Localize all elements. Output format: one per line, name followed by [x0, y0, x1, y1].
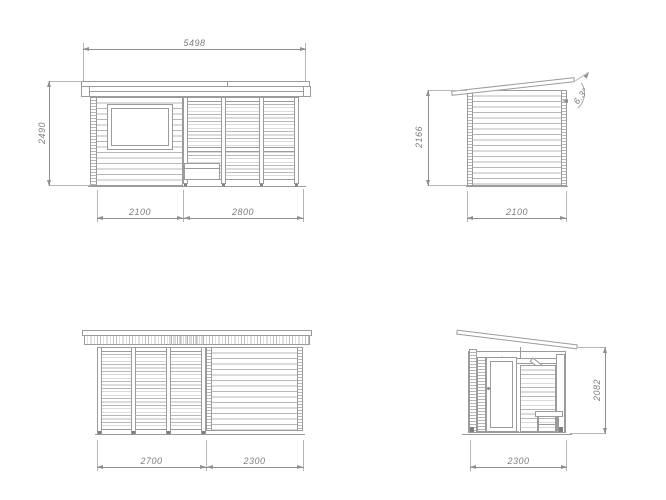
door-panel	[490, 361, 513, 428]
dim-arrow	[603, 428, 607, 434]
roof-plank	[456, 330, 578, 350]
step-shelf-line	[537, 424, 559, 425]
gable-stud	[520, 347, 521, 358]
ground-line	[462, 434, 572, 435]
door-side-trim	[477, 357, 486, 432]
corner-post	[469, 349, 477, 433]
door-handle	[487, 387, 490, 390]
door-threshold	[484, 431, 519, 433]
side-elevation-door-view: 2082 2300	[0, 0, 666, 500]
drawing-canvas: 5498 2490 2100 2800 6.3°	[0, 0, 666, 500]
dim-label-depth: 2300	[470, 455, 567, 467]
dim-label-height: 2082	[591, 370, 603, 410]
extension-line	[570, 433, 606, 434]
post-foot	[559, 427, 563, 432]
dim-arrow	[603, 347, 607, 353]
dim-line	[605, 347, 606, 434]
extension-line	[578, 347, 606, 348]
dim-line	[470, 467, 567, 468]
post-foot	[470, 427, 474, 432]
